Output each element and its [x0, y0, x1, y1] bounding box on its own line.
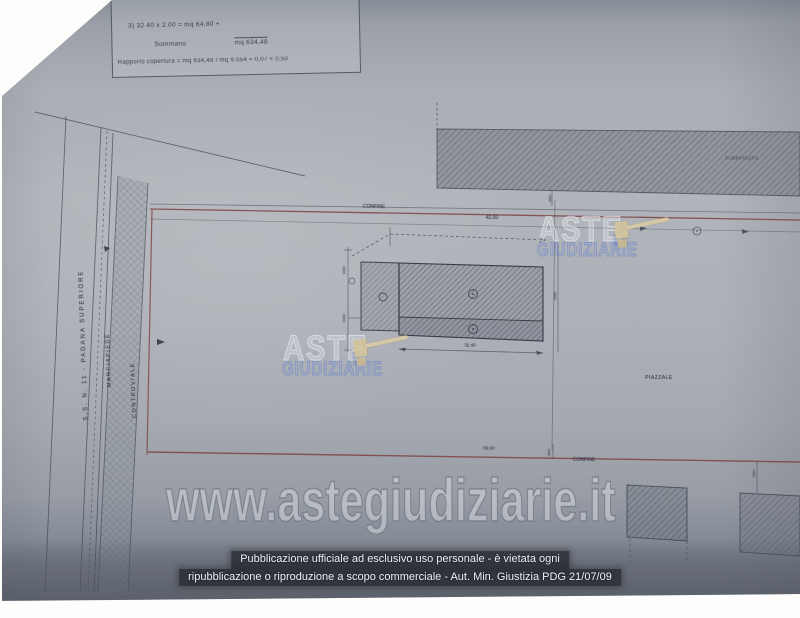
- boundary-left-line: [147, 210, 152, 455]
- table-row-sum-value: mq 634,48: [234, 37, 268, 47]
- arrow-marker: [157, 339, 165, 345]
- boundary-bottom-line: [148, 452, 800, 462]
- yard-label: PIAZZALE: [645, 375, 673, 381]
- blueprint-photo: S.S. N. 11 - PADANA SUPERIORE MARCIAPIED…: [0, 0, 800, 618]
- service-road-strip: [98, 176, 148, 592]
- building-width-dim: 32.40: [464, 343, 475, 348]
- adjacent-building-label: FABBRICATO: [725, 156, 758, 161]
- table-row-sum-label: Sommano: [154, 40, 186, 48]
- dim-smudge: [548, 449, 550, 456]
- arrow-marker: [104, 246, 110, 252]
- boundary-top-line: [150, 209, 800, 220]
- scanned-page: S.S. N. 11 - PADANA SUPERIORE MARCIAPIED…: [0, 0, 800, 618]
- table-row-ratio: Rapporto copertura = mq 634,48 / mq 9.55…: [118, 56, 289, 66]
- publication-notice-line1: Pubblicazione ufficiale ad esclusivo uso…: [231, 551, 569, 569]
- adjacent-building-band: [437, 103, 800, 206]
- publication-notice-line2: ripubblicazione o riproduzione a scopo c…: [179, 569, 621, 587]
- boundary-top-label: CONFINE: [363, 204, 386, 210]
- watermark-url: www.astegiudiziarie.it: [166, 471, 616, 531]
- table-row-area: 3) 32.40 x 2.00 = mq 64,80 +: [128, 21, 220, 30]
- dim-smudge: [554, 292, 556, 300]
- dim-smudge: [753, 470, 755, 477]
- dim-smudge: [549, 195, 551, 202]
- dim-smudge: [343, 266, 345, 274]
- dim-smudge: [343, 314, 345, 322]
- road-top-diagonal: [35, 112, 305, 176]
- boundary-bottom-dim: 59.60: [483, 445, 494, 450]
- boundary-bottom-label: CONFINE: [573, 457, 596, 463]
- gavel-icon: [612, 214, 674, 252]
- computation-table: 3) 32.40 x 2.00 = mq 64,80 + Sommano mq …: [110, 0, 361, 78]
- gavel-icon: [351, 332, 413, 370]
- boundary-top-dim: 42.00: [486, 215, 499, 221]
- boundary-top: [150, 204, 800, 235]
